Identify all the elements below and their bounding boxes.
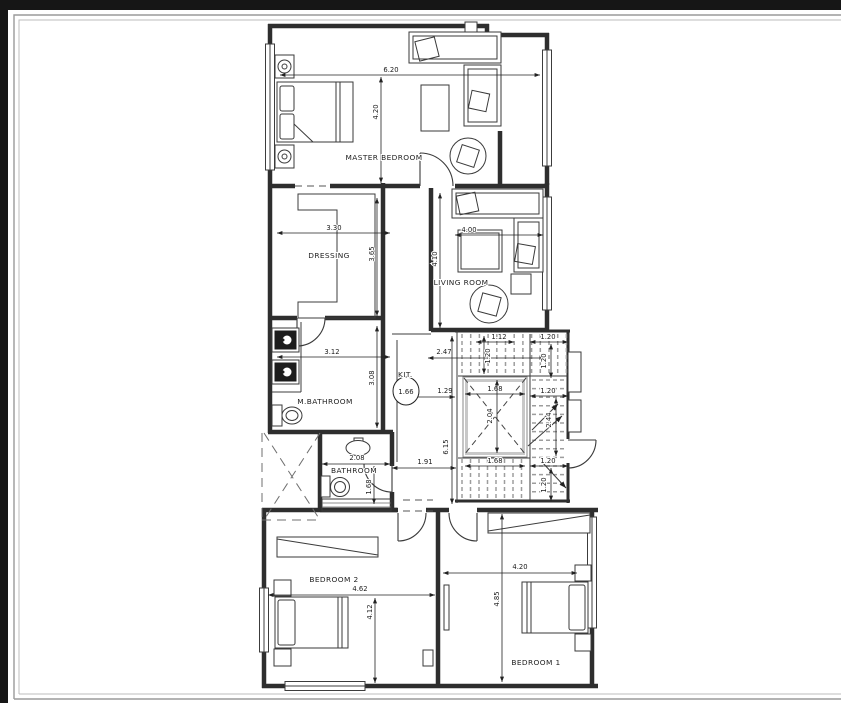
bed	[522, 582, 588, 633]
bedroom1-door	[449, 513, 477, 541]
bedroom2-bottom-window	[285, 682, 365, 691]
room-label-master-bedroom: MASTER BEDROOM	[346, 153, 423, 162]
wall-unit	[423, 650, 433, 666]
dim-living-height: 4.10	[431, 251, 439, 266]
dim-hall-top: 2.47	[436, 348, 451, 356]
dim-dressing-height: 3.65	[368, 246, 376, 261]
dim-tread-e: 1.20	[540, 457, 555, 465]
dim-stair-top: 1.12	[491, 333, 506, 341]
toilet	[272, 405, 302, 426]
mirror-panel	[444, 585, 449, 630]
side-table	[511, 274, 531, 294]
coffee-table	[421, 85, 449, 131]
mbathroom-fixtures	[272, 322, 302, 426]
oval-sink	[346, 438, 370, 456]
dim-bath-height: 1.68	[365, 479, 373, 494]
left-black-bar	[0, 0, 8, 703]
square-table	[458, 230, 502, 272]
kitchen-dim-bubble: 1.66	[393, 377, 419, 405]
living-room-furniture	[452, 189, 543, 323]
stair-exit-door	[568, 440, 596, 468]
sink	[272, 328, 299, 352]
sofa	[452, 189, 543, 218]
right-flight-treads	[532, 380, 566, 492]
dim-void-height: 2.04	[486, 408, 494, 423]
dim-bed1-width: 4.20	[512, 563, 527, 571]
dim-tread-f: 1.20	[540, 477, 548, 492]
dim-kit-bubble: 1.66	[398, 388, 413, 396]
nightstand	[575, 565, 591, 581]
wardrobe	[277, 537, 378, 557]
bed	[275, 597, 348, 648]
bedroom2-furniture	[274, 537, 433, 666]
dim-hall-bottom: 1.91	[417, 458, 432, 466]
dim-bed1-height: 4.85	[493, 591, 501, 606]
nightstand	[274, 580, 291, 596]
dim-master-width: 6.20	[383, 66, 398, 74]
dim-tread-c: 1.20	[540, 353, 548, 368]
dim-tread-a: 1.20	[540, 333, 555, 341]
wardrobe	[488, 513, 590, 533]
round-armchair	[450, 138, 486, 174]
dim-mbath-height: 3.08	[368, 370, 376, 385]
dim-living-width: 4.00	[461, 226, 476, 234]
bed	[277, 82, 353, 142]
room-label-dressing: DRESSING	[308, 251, 350, 260]
dim-dressing-width: 3.30	[326, 224, 341, 232]
master-door	[420, 153, 453, 186]
room-label-bathroom: BATHROOM	[331, 466, 377, 475]
toilet	[321, 476, 350, 497]
dim-mbath-width: 3.12	[324, 348, 339, 356]
dim-tread-b: 1.20	[484, 348, 492, 363]
master-window	[266, 44, 275, 170]
room-label-kitchen: KIT.	[398, 370, 413, 379]
dim-hall-length: 6.15	[442, 439, 450, 454]
terrace-void-x	[262, 433, 320, 520]
sofa	[409, 32, 501, 63]
sitting-window	[543, 50, 552, 166]
bedroom2-door	[398, 513, 426, 541]
floor-plan-page: 6.20 4.20 3.30 3.65 4.00 4.10 3.12 3.08 …	[0, 0, 841, 703]
dim-master-height: 4.20	[372, 104, 380, 119]
top-black-bar	[0, 0, 841, 10]
nightstand	[274, 649, 291, 666]
floor-plan-drawing: 6.20 4.20 3.30 3.65 4.00 4.10 3.12 3.08 …	[0, 0, 841, 703]
room-label-bedroom1: BEDROOM 1	[511, 658, 560, 667]
bedroom2-side-window	[260, 588, 269, 652]
sofa	[464, 65, 501, 126]
bedroom1-furniture	[444, 513, 591, 651]
living-window	[543, 197, 552, 310]
nightstand	[275, 55, 294, 78]
dim-hall-mid: 1.29	[437, 387, 452, 395]
nightstand	[575, 634, 591, 651]
dim-bed2-width: 4.62	[352, 585, 367, 593]
dim-flight: 2.44	[545, 412, 553, 427]
dim-tread-d: 1.20	[540, 387, 555, 395]
room-label-mbathroom: M.BATHROOM	[297, 397, 353, 406]
sofa	[514, 218, 543, 272]
dim-bed2-height: 4.12	[366, 604, 374, 619]
dim-bath-width: 2.08	[349, 454, 364, 462]
nightstand	[275, 145, 294, 168]
room-label-bedroom2: BEDROOM 2	[309, 575, 358, 584]
room-label-living-room: LIVING ROOM	[434, 278, 489, 287]
round-armchair	[470, 285, 508, 323]
sink	[272, 360, 299, 384]
dim-void-width-b: 1.68	[487, 457, 502, 465]
dim-void-width: 1.68	[487, 385, 502, 393]
